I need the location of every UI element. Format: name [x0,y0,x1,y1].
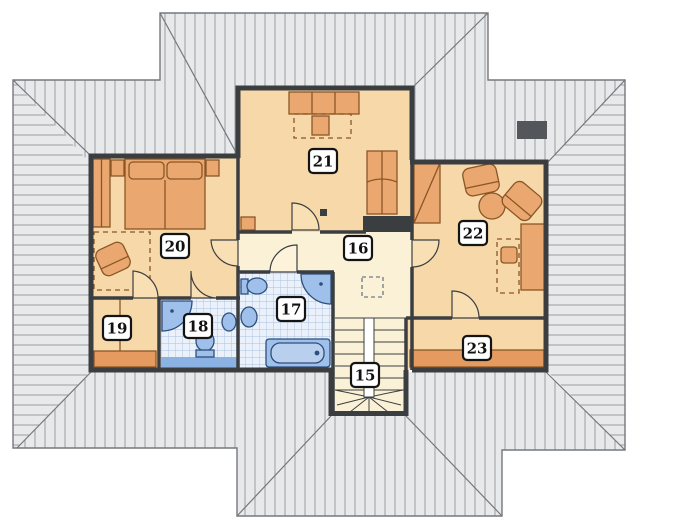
floor-plan-page: 15 16 17 18 19 20 21 22 [0,0,700,529]
room-label-21: 21 [309,149,337,173]
floor-plan-drawing: 15 16 17 18 19 20 21 22 [0,0,700,529]
room-21-door-stop [320,209,327,216]
room-label-16: 16 [344,236,372,260]
room-22-desk-chair [501,247,517,263]
room-number-18: 18 [188,318,209,336]
room-19-storage-band [94,351,156,367]
roof-slope-south [17,372,625,516]
room-number-20: 20 [165,238,186,256]
room-label-20: 20 [161,234,189,258]
room-number-19: 19 [107,320,128,338]
room-20-nightstand-left [111,160,124,176]
bathroom-17-bathtub-drain [315,351,320,356]
room-number-17: 17 [281,301,302,319]
room-number-22: 22 [463,225,484,243]
room-22-desk [521,224,546,290]
room-21-masonry-pier [363,216,412,232]
room-label-19: 19 [103,316,131,340]
room-20-pillow-left [129,162,164,179]
bathroom-18-toilet-tank [196,350,214,357]
room-label-15: 15 [351,363,379,387]
bathroom-17-toilet-bowl [247,278,267,294]
bathroom-17-shower-drain [319,282,323,286]
room-number-21: 21 [313,153,334,171]
hall-16-lower-floor [333,272,412,318]
bathroom-18-sink [222,313,236,331]
room-20-nightstand-right [206,160,219,176]
room-22-round-table [479,193,505,219]
chimney [517,121,547,139]
room-number-15: 15 [355,367,376,385]
bathroom-18-shower-drain [170,309,174,313]
room-number-23: 23 [467,340,488,358]
bathroom-18-bottom-band [161,357,237,368]
hall-16-floor [238,232,412,272]
room-20-pillow-right [167,162,202,179]
room-label-22: 22 [459,221,487,245]
room-label-18: 18 [184,314,212,338]
room-21-bench [312,116,329,135]
bathroom-17-sink [241,307,257,327]
room-21-side-table [241,217,255,230]
room-21-bed-headboard [289,92,359,114]
room-number-16: 16 [348,240,369,258]
room-label-17: 17 [277,297,305,321]
room-label-23: 23 [463,336,491,360]
